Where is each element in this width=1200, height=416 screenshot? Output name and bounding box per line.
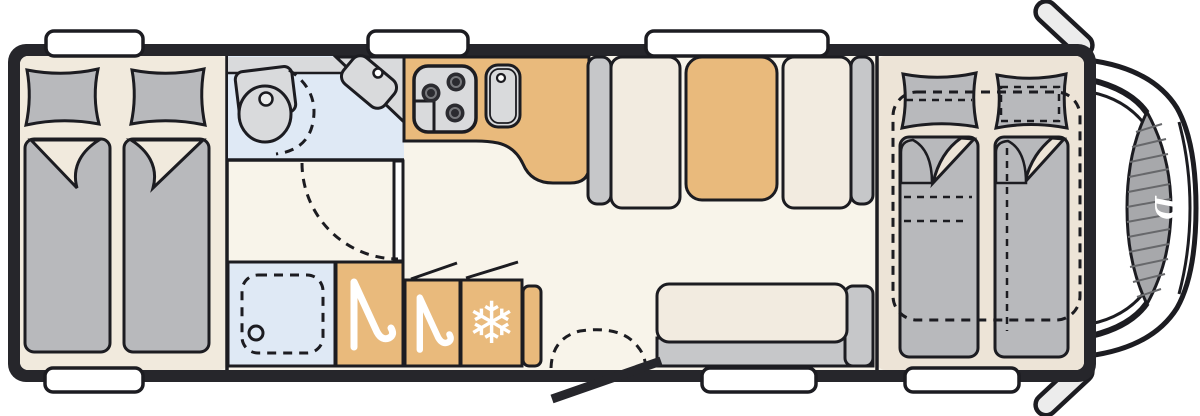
windshield-logo: D xyxy=(1148,195,1179,220)
window-bottom-front xyxy=(905,368,1019,392)
seat-right-cushion xyxy=(783,57,851,208)
seat-left-backrest xyxy=(588,57,611,204)
seat-right-backrest xyxy=(851,57,873,204)
window-top-dinette xyxy=(646,31,828,56)
bench-cushion xyxy=(657,284,847,342)
floorplan-canvas: D xyxy=(0,0,1200,416)
basin-drain xyxy=(374,69,383,78)
pillow-rear-right xyxy=(131,69,205,125)
sink-drain xyxy=(497,74,505,82)
shower-group xyxy=(228,262,335,366)
dinette-group xyxy=(588,57,873,208)
pillow-rear-left xyxy=(26,69,99,125)
bench-armrest-right xyxy=(845,286,873,366)
toilet-flush-button xyxy=(260,93,273,106)
window-bottom-rear xyxy=(45,368,143,392)
window-top-rear xyxy=(46,31,143,56)
window-top-kitchen xyxy=(368,31,468,56)
window-bottom-bench xyxy=(702,368,816,392)
dinette-table xyxy=(686,57,777,200)
seat-left-cushion xyxy=(611,57,680,208)
floorplan-stage: D xyxy=(0,0,1200,416)
shower-floor xyxy=(228,262,335,366)
pillow-front-left xyxy=(902,73,977,128)
snowflake-icon: ❄ xyxy=(467,289,516,357)
hob xyxy=(414,66,476,132)
side-bench-group xyxy=(657,284,873,366)
washroom-door-leaf xyxy=(394,161,403,261)
cabinet-end-panel xyxy=(523,286,541,366)
